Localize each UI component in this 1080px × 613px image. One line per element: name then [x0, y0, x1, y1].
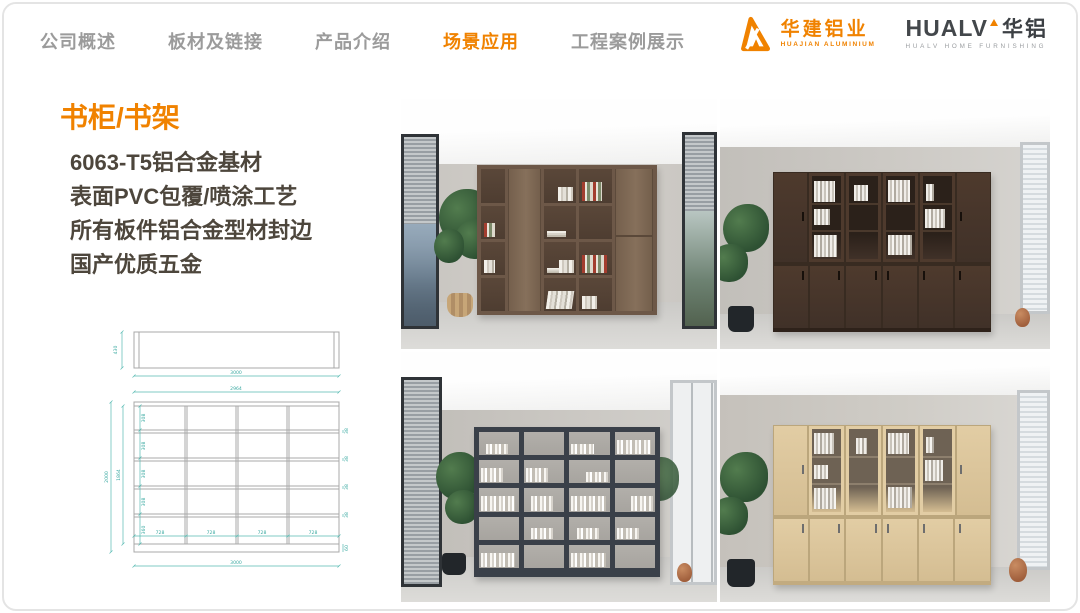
dim-col-2: 728 — [207, 530, 216, 536]
glass-shelf — [886, 203, 915, 205]
glass-door — [845, 172, 882, 263]
shelf-cell — [615, 517, 655, 540]
bookshelf — [477, 165, 657, 315]
glass-door — [808, 425, 845, 516]
glass-shelf — [923, 230, 952, 232]
header: 公司概述 板材及链接 产品介绍 场景应用 工程案例展示 华建铝业 HUAJIAN… — [4, 4, 1076, 76]
door-handle — [959, 524, 961, 533]
plant-pot — [727, 559, 755, 587]
door-handle — [802, 465, 804, 474]
hualv-en-text: HUALV — [905, 17, 988, 40]
door-handle — [959, 271, 961, 280]
glass-shelf — [849, 483, 878, 485]
cabinet-lower-section — [773, 263, 991, 329]
huajian-triangle-icon — [735, 16, 775, 52]
shelf-column — [544, 169, 576, 311]
books-decor — [617, 528, 639, 538]
door-handle — [802, 271, 804, 280]
glass-door — [919, 172, 956, 263]
shelf-cell — [524, 460, 564, 483]
huajian-en-text: HUAJIAN ALUMINIUM — [781, 42, 876, 49]
glass-door — [882, 172, 919, 263]
books-decor — [559, 260, 574, 273]
books-decor — [531, 528, 553, 538]
dim-col-1: 728 — [156, 530, 165, 536]
page-title: 书柜/书架 — [60, 96, 401, 136]
dim-top-height: 430 — [113, 346, 119, 355]
door-handle — [960, 212, 962, 221]
door-handle — [923, 524, 925, 533]
nav-item-company-overview[interactable]: 公司概述 — [40, 28, 116, 54]
glass-pane — [886, 176, 915, 259]
shelf-cell — [544, 206, 576, 239]
dim-base: 60 — [344, 545, 350, 551]
books-decor — [546, 291, 575, 309]
window-right — [1017, 390, 1050, 570]
shelf-cell — [479, 517, 519, 540]
plant-foliage — [720, 452, 768, 502]
hualv-logo: HUALV 华铝 HUALV HOME FURNISHING — [905, 17, 1048, 50]
shelf-cell — [481, 278, 505, 311]
cabinet-door — [508, 169, 541, 311]
vase — [677, 563, 692, 582]
spec-line-hardware: 国产优质五金 — [70, 248, 401, 282]
books-decor — [856, 438, 867, 454]
main-nav: 公司概述 板材及链接 产品介绍 场景应用 工程案例展示 — [40, 28, 685, 54]
cabinet-door — [809, 265, 845, 329]
door-handle — [802, 524, 804, 533]
cabinet-door — [918, 265, 954, 329]
glass-pane — [812, 429, 841, 512]
cabinet-door — [882, 265, 918, 329]
plant-pot — [447, 293, 473, 317]
ceiling — [401, 99, 717, 164]
dim-col-3: 728 — [258, 530, 267, 536]
dim-row-4: 308 — [141, 498, 147, 507]
books-decor — [814, 209, 830, 226]
books-decor — [582, 296, 597, 309]
glass-shelf — [812, 483, 841, 485]
bookshelf — [474, 427, 660, 577]
shelf-cell — [615, 460, 655, 483]
cabinet-door — [773, 425, 808, 516]
spec-line-material: 6063-T5铝合金基材 — [70, 146, 401, 180]
door-handle — [802, 212, 804, 221]
top-view-outline — [134, 332, 339, 368]
glass-shelf — [886, 483, 915, 485]
glass-shelf — [812, 203, 841, 205]
shelf-cell — [544, 169, 576, 202]
cabinet-door — [918, 518, 954, 582]
shelf-cell — [569, 488, 609, 511]
shelf-column — [579, 169, 611, 311]
city-view — [404, 224, 436, 326]
books-decor — [586, 472, 608, 482]
window-right — [1020, 142, 1050, 315]
books-decor — [526, 468, 548, 482]
books-decor — [582, 255, 606, 273]
bookcase-cabinet — [773, 425, 991, 585]
shelf-cell — [569, 432, 609, 455]
shelf-cell — [524, 545, 564, 568]
glass-pane — [849, 176, 878, 259]
shelf-cell — [524, 517, 564, 540]
cabinet-upper-section — [773, 172, 991, 263]
dim-total-height: 2000 — [104, 471, 110, 483]
shelf-cell — [579, 242, 611, 275]
glass-shelf — [886, 230, 915, 232]
cabinet-plinth — [773, 328, 991, 332]
nav-item-scene-application[interactable]: 场景应用 — [443, 28, 519, 54]
plant-pot — [442, 553, 466, 575]
books-decor — [571, 553, 606, 567]
books-decor — [888, 487, 913, 509]
books-decor — [571, 444, 593, 454]
glass-pane — [849, 429, 878, 512]
cabinet-door — [954, 518, 990, 582]
books-decor — [547, 231, 566, 236]
window-left — [401, 134, 439, 329]
glass-shelf — [849, 203, 878, 205]
spec-list: 6063-T5铝合金基材 表面PVC包覆/喷涂工艺 所有板件铝合金型材封边 国产… — [70, 146, 401, 282]
door-handle — [838, 524, 840, 533]
cabinet-door — [956, 172, 991, 263]
dim-col-4: 728 — [309, 530, 318, 536]
glass-door — [882, 425, 919, 516]
door-handle — [838, 271, 840, 280]
left-panel: 书柜/书架 6063-T5铝合金基材 表面PVC包覆/喷涂工艺 所有板件铝合金型… — [4, 92, 401, 582]
glass-door — [845, 425, 882, 516]
dim-row-2: 308 — [141, 442, 147, 451]
glass-shelf — [812, 230, 841, 232]
shelf-cell — [569, 545, 609, 568]
cabinet-door — [809, 518, 845, 582]
shelf-cell — [569, 517, 609, 540]
dim-top-width: 3000 — [230, 370, 242, 376]
photo-charcoal-open-shelving — [401, 352, 717, 602]
technical-drawing: 430 3000 2964 2000 1864 308 308 308 308 … — [104, 322, 376, 582]
shelf-cell — [481, 242, 505, 275]
slide: 公司概述 板材及链接 产品介绍 场景应用 工程案例展示 华建铝业 HUAJIAN… — [2, 2, 1078, 611]
books-decor — [814, 465, 829, 479]
door-handle — [875, 271, 877, 280]
window-right — [682, 132, 717, 330]
shelf-cell — [579, 169, 611, 202]
books-decor — [925, 460, 943, 481]
door-handle — [923, 271, 925, 280]
window-blinds — [404, 137, 436, 224]
shelf-cell — [615, 432, 655, 455]
huajian-logo: 华建铝业 HUAJIAN ALUMINIUM — [735, 16, 876, 52]
cabinet-door — [615, 169, 653, 311]
books-decor — [926, 184, 935, 201]
shelf-cell — [615, 488, 655, 511]
dim-side-1: 38 — [344, 428, 350, 434]
shelf-cell — [481, 206, 505, 239]
window-blinds — [1023, 145, 1047, 312]
books-decor — [481, 468, 503, 482]
cabinet-door — [845, 518, 881, 582]
shelf-cell — [481, 169, 505, 202]
books-decor — [484, 223, 495, 236]
books-decor — [888, 433, 910, 455]
shelf-cell — [524, 488, 564, 511]
glass-pane — [923, 176, 952, 259]
books-decor — [571, 496, 606, 510]
glass-shelf — [923, 483, 952, 485]
vase — [1009, 558, 1027, 582]
nav-item-product-intro[interactable]: 产品介绍 — [315, 28, 391, 54]
books-decor — [854, 185, 867, 201]
books-decor — [481, 496, 516, 510]
dim-row-3: 308 — [141, 470, 147, 479]
door-handle — [875, 524, 877, 533]
shelf-cell — [544, 278, 576, 311]
door-handle — [887, 524, 889, 533]
glass-pane — [923, 429, 952, 512]
books-decor — [582, 182, 602, 200]
product-image-grid — [401, 99, 1050, 602]
hualv-accent-mark-icon — [990, 19, 998, 26]
window-blinds — [404, 380, 439, 584]
books-decor — [486, 444, 508, 454]
books-decor — [617, 440, 652, 454]
dim-side-2: 38 — [344, 456, 350, 462]
cabinet-door — [845, 265, 881, 329]
nav-item-project-cases[interactable]: 工程案例展示 — [571, 28, 685, 54]
hualv-wordmark-row: HUALV 华铝 — [905, 17, 1048, 40]
shelf-cell — [479, 460, 519, 483]
books-decor — [481, 553, 516, 567]
books-decor — [577, 528, 599, 538]
hualv-subtitle-text: HUALV HOME FURNISHING — [905, 44, 1048, 50]
glass-shelf — [849, 230, 878, 232]
books-decor — [814, 181, 835, 202]
ceiling — [720, 99, 1050, 147]
cabinet-door — [773, 265, 809, 329]
glass-pane — [812, 176, 841, 259]
glass-shelf — [812, 456, 841, 458]
window-blinds — [685, 135, 714, 212]
books-decor — [925, 209, 945, 228]
bookcase-cabinet — [773, 172, 991, 332]
cabinet-door — [773, 518, 809, 582]
glass-door — [808, 172, 845, 263]
door-handle — [960, 465, 962, 474]
door-seam — [616, 235, 652, 237]
photo-oak-glass-cabinet — [720, 352, 1050, 602]
shelf-cell — [479, 488, 519, 511]
cabinet-door — [882, 518, 918, 582]
books-decor — [888, 235, 913, 256]
window-blinds — [1020, 393, 1047, 567]
dim-inner-height: 1864 — [116, 469, 122, 481]
books-decor — [484, 260, 495, 273]
glass-shelf — [849, 456, 878, 458]
shelf-cell — [579, 278, 611, 311]
cabinet-door — [956, 425, 991, 516]
glass-pane — [886, 429, 915, 512]
dim-total-width: 3000 — [230, 560, 242, 566]
plant-pot — [728, 306, 754, 332]
glass-shelf — [923, 456, 952, 458]
plant-foliage — [434, 229, 464, 263]
books-decor — [926, 437, 934, 454]
greenery-view — [685, 211, 714, 326]
books-decor — [814, 433, 834, 454]
vase — [1015, 308, 1030, 327]
dim-side-4: 38 — [344, 512, 350, 518]
books-decor — [531, 496, 553, 510]
huajian-wordmark: 华建铝业 HUAJIAN ALUMINIUM — [781, 20, 876, 49]
shelf-cell — [569, 460, 609, 483]
brand-logos: 华建铝业 HUAJIAN ALUMINIUM HUALV 华铝 HUALV HO… — [735, 16, 1048, 52]
spec-line-edging: 所有板件铝合金型材封边 — [70, 214, 401, 248]
huajian-cn-text: 华建铝业 — [781, 20, 876, 39]
cabinet-lower-section — [773, 516, 991, 582]
glass-door — [919, 425, 956, 516]
shelf-column — [481, 169, 505, 311]
dim-row-5: 360 — [141, 526, 147, 535]
photo-dark-walnut-glass-cabinet — [720, 99, 1050, 349]
dim-side-3: 38 — [344, 484, 350, 490]
glass-shelf — [886, 456, 915, 458]
nav-item-panels-links[interactable]: 板材及链接 — [168, 28, 263, 54]
spec-line-surface: 表面PVC包覆/喷涂工艺 — [70, 180, 401, 214]
shelf-cell — [579, 206, 611, 239]
cabinet-door — [773, 172, 808, 263]
books-decor — [814, 488, 837, 509]
ceiling — [720, 352, 1050, 395]
shelf-cell — [524, 432, 564, 455]
shelf-cell — [479, 432, 519, 455]
shelf-cell — [615, 545, 655, 568]
books-decor — [814, 235, 837, 257]
shelf-cell — [479, 545, 519, 568]
books-decor — [888, 180, 911, 202]
cabinet-door — [954, 265, 990, 329]
photo-walnut-open-bookshelf — [401, 99, 717, 349]
cabinet-plinth — [773, 581, 991, 585]
door-handle — [887, 271, 889, 280]
dim-inner-width: 2964 — [230, 386, 242, 392]
books-decor — [558, 187, 573, 200]
hualv-cn-text: 华铝 — [1002, 19, 1048, 40]
cabinet-upper-section — [773, 425, 991, 516]
dim-row-1: 308 — [141, 414, 147, 423]
shelf-cell — [544, 242, 576, 275]
glass-shelf — [923, 203, 952, 205]
books-decor — [631, 496, 653, 510]
